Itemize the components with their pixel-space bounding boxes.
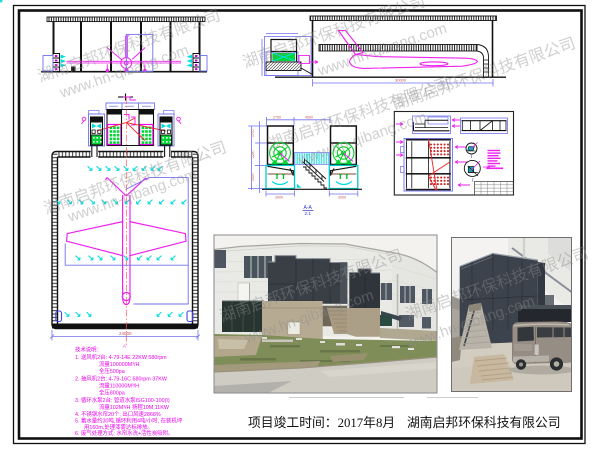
svg-text:4. 不锈钢水帘20个, 出口风速2868%: 4. 不锈钢水帘20个, 出口风速2868%	[75, 410, 161, 418]
svg-text:2300: 2300	[251, 173, 255, 181]
svg-text:2250: 2250	[251, 150, 255, 158]
svg-text:流量110000M³/H: 流量110000M³/H	[99, 382, 139, 390]
svg-text:全压500pa: 全压500pa	[99, 367, 125, 375]
svg-text:湖南启邦环保科技有限公司: 湖南启邦环保科技有限公司	[407, 415, 561, 430]
svg-text:4500: 4500	[305, 116, 313, 120]
svg-text:1700: 1700	[251, 129, 255, 137]
svg-text:2:1: 2:1	[305, 211, 312, 216]
svg-text:流量100000M³/H: 流量100000M³/H	[99, 360, 140, 368]
svg-text:3000: 3000	[338, 196, 346, 200]
svg-text:用160m,处理漆雾达标排放。: 用160m,处理漆雾达标排放。	[84, 423, 153, 431]
svg-text:5. 蓄水量约30吨,循环利用4吨/小时, 在装机坪: 5. 蓄水量约30吨,循环利用4吨/小时, 在装机坪	[75, 417, 183, 425]
svg-text:项目竣工时间：2017年8月: 项目竣工时间：2017年8月	[248, 416, 395, 430]
svg-text:6. 废气处理方式: 水帘水洗+活性炭吸附。: 6. 废气处理方式: 水帘水洗+活性炭吸附。	[75, 429, 173, 437]
svg-text:30000: 30000	[395, 78, 407, 83]
svg-text:技术说明：: 技术说明：	[75, 346, 102, 354]
svg-text:2. 抽风机2台: 4-79-16C 680rpm 37KW: 2. 抽风机2台: 4-79-16C 680rpm 37KW	[75, 375, 168, 383]
svg-text:3000: 3000	[275, 196, 283, 200]
svg-text:3. 循环水泵2台: 管道水泵ISG100-100(I): 3. 循环水泵2台: 管道水泵ISG100-100(I)	[75, 396, 170, 404]
svg-text:24000: 24000	[119, 331, 132, 336]
svg-text:流量102M³/H 扬程10M 11KW: 流量102M³/H 扬程10M 11KW	[99, 403, 170, 411]
svg-text:全压800pa: 全压800pa	[99, 389, 125, 397]
svg-text:A: A	[123, 344, 126, 349]
svg-text:1. 送风机2台: 4-79-14E 22KW 580r: 1. 送风机2台: 4-79-14E 22KW 580rpm	[75, 353, 167, 361]
svg-text:2750: 2750	[273, 116, 281, 120]
